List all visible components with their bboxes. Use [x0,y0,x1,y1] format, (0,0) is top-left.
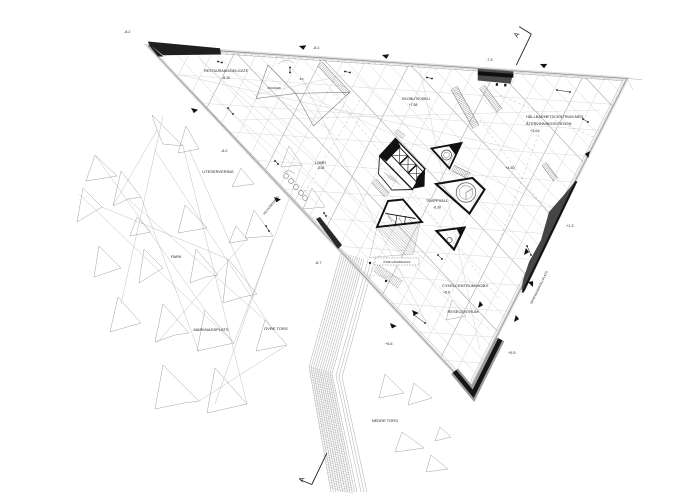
svg-text:-8.10: -8.10 [222,76,230,80]
svg-text:RESECENTRUM: RESECENTRUM [448,309,479,314]
svg-text:-8.2: -8.2 [124,30,131,34]
svg-text:HÅLLBARHETSCENTRUM MED: HÅLLBARHETSCENTRUM MED [526,114,583,119]
svg-text:UTESERVERING: UTESERVERING [202,169,234,174]
svg-text:ÖVRE TORG: ÖVRE TORG [264,326,288,331]
svg-text:-8.05: -8.05 [317,166,324,170]
svg-text:+7.58: +7.58 [409,103,418,107]
svg-text:+1.04: +1.04 [530,129,539,133]
svg-text:TRAPPHALL: TRAPPHALL [426,199,448,203]
svg-text:ÅTERVINNINGSSTATION: ÅTERVINNINGSSTATION [526,121,572,126]
svg-text:-7.3: -7.3 [486,58,493,62]
svg-text:+5.5: +5.5 [508,351,516,355]
svg-text:NEDRE TORG: NEDRE TORG [372,418,399,423]
svg-text:+4.50: +4.50 [505,166,515,170]
svg-text:+1.3: +1.3 [566,224,574,228]
svg-text:-8.30: -8.30 [433,206,441,210]
svg-text:EKOBUTIK/DELI: EKOBUTIK/DELI [402,97,430,101]
svg-text:MARKNADSPLATS: MARKNADSPLATS [193,327,228,332]
svg-text:-8.0: -8.0 [299,77,304,81]
svg-text:PARK: PARK [171,254,182,259]
svg-text:RESTAURANG/DELICATE: RESTAURANG/DELICATE [204,69,249,73]
svg-text:ORANGERI: ORANGERI [267,86,281,90]
svg-text:-8.7: -8.7 [315,261,322,265]
svg-text:+5.6: +5.6 [443,291,450,295]
svg-text:LOBBY: LOBBY [315,161,327,165]
svg-text:-8.1: -8.1 [313,46,320,50]
svg-text:-8.2: -8.2 [221,149,228,153]
svg-text:CYKELCENTRUM/MOBX: CYKELCENTRUM/MOBX [442,283,488,288]
svg-text:+5.6: +5.6 [385,342,393,346]
